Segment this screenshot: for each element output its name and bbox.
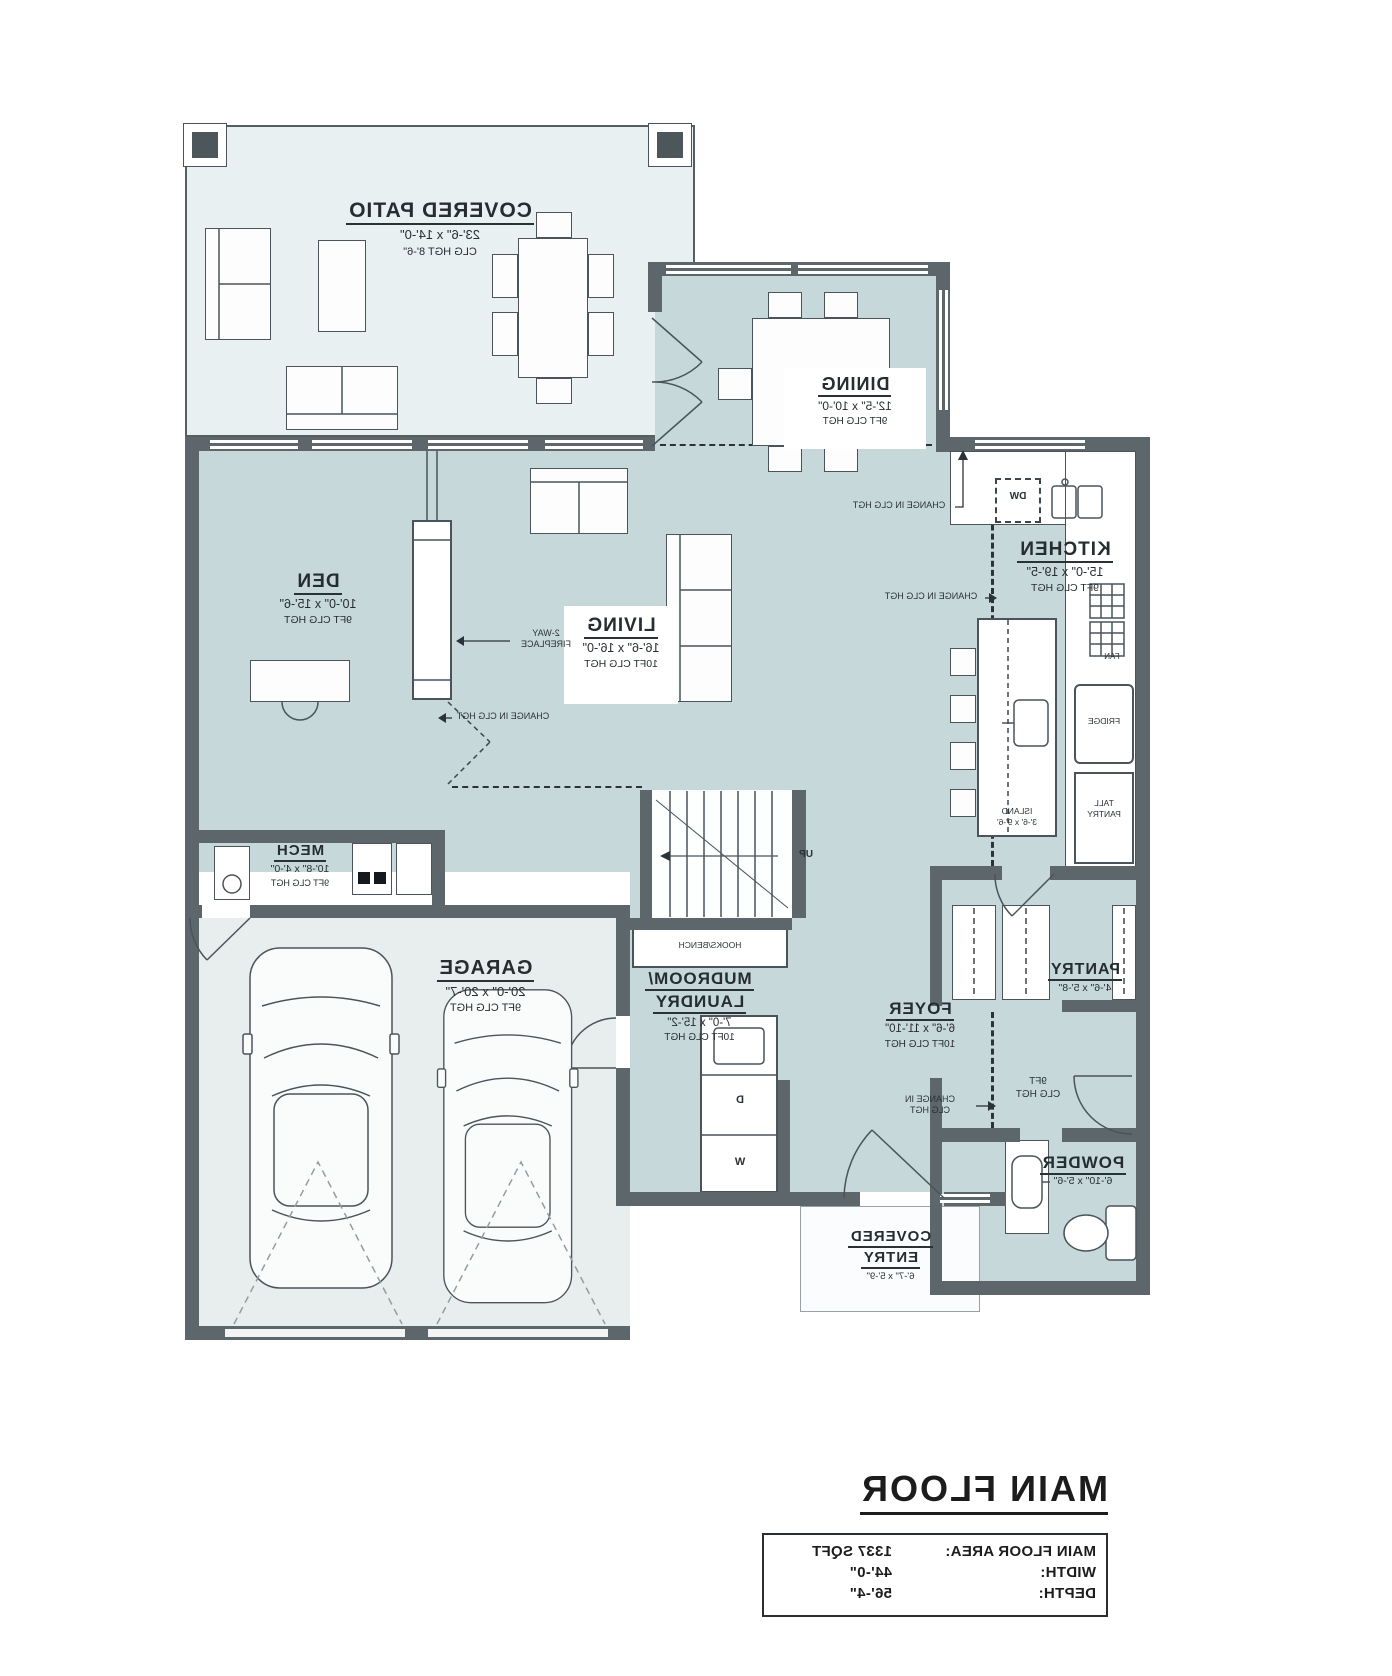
island-label: ISLAND 3'-6' x 9'-6' [980,806,1054,827]
room-dims: 4'-6" x 5'-8" [1018,982,1152,995]
island-stool [950,648,976,676]
island-stool [950,742,976,770]
room-name: KITCHEN [1017,539,1112,563]
floor-plan-canvas: COVERED PATIO 23'-6" x 14'-0" CLG HGT 8'… [0,0,1392,1676]
room-dims: 6'-7" x 5'-9" [828,1271,953,1283]
den-desk [250,660,350,702]
patio-post-core [192,132,218,158]
room-name: MUDROOM/ [645,969,753,991]
door-opening [202,905,250,918]
room-name: LIVING [584,615,657,639]
patio-chair [536,378,572,404]
room-label-mudroom-laundry: MUDROOM/ LAUNDRY 7'-0" x 15'-2" 10FT CLG… [612,968,787,1044]
fireplace-line: FIREPLACE [512,639,580,650]
wall-segment [185,437,199,918]
stat-row: DEPTH: 56'-4" [774,1585,1096,1602]
wall-segment [185,918,199,1340]
wall-segment [790,1192,860,1206]
dining-chair [768,446,802,472]
room-name: FOYER [886,999,954,1021]
garage-door-panel [225,1329,405,1337]
wall-segment [930,1281,1150,1295]
wall-segment [630,918,792,930]
wall-segment [930,866,942,1006]
room-label-mech: MECH 10'-8" x 4'-0" 9FT CLG HGT [240,842,360,889]
room-label-pantry: PANTRY 4'-6" x 5'-8" [1018,960,1152,995]
patio-chair [588,254,614,298]
mech-panel [396,843,432,895]
ceiling-change-line [452,786,642,788]
patio-loveseat [205,228,271,340]
room-name: COVERED [848,1228,933,1248]
dining-chair [768,292,802,318]
room-ceiling: 9FT CLG HGT [238,614,398,627]
room-ceiling: 9FT CLG HGT [240,878,360,889]
mech-panel-switch [374,872,386,884]
window [428,440,528,449]
change-clg-note: CHANGE IN CLG HGT [450,711,556,722]
change-clg-note: CHANGE IN CLG HGT [843,500,955,511]
room-label-kitchen: KITCHEN 15'-0" x 19'-5" 9FT CLG HGT [980,538,1150,596]
wall-segment [1062,1128,1150,1142]
room-label-garage: GARAGE 20'-0" x 20'-7" 9FT CLG HGT [398,956,573,1016]
window [545,440,643,449]
room-label-dining: DINING 12'-5" x 10'-0" 9FT CLG HGT [784,368,926,449]
change-clg-line: CLG HGT [884,1105,976,1116]
wall-segment [185,905,630,918]
room-name: ENTRY [861,1249,920,1269]
island-line: 3'-6' x 9'-6' [980,817,1054,828]
window [312,440,412,449]
patio-sofa [286,366,398,430]
wall-segment [648,262,662,312]
room-label-covered-patio: COVERED PATIO 23'-6" x 14'-0" CLG HGT 8'… [330,198,550,259]
room-dims: 20'-0" x 20'-7" [398,984,573,1000]
fireplace-line: 2-WAY [512,628,580,639]
stat-row: WIDTH: 44'-0" [774,1564,1096,1581]
change-clg-note: CHANGE IN CLG HGT [884,1094,976,1117]
stairs-area [652,790,792,918]
title-block-stats: MAIN FLOOR AREA: 1337 SQFT WIDTH: 44'-0"… [762,1533,1108,1617]
pantry-shelving [952,905,996,1000]
wall-segment [942,1128,1020,1142]
room-name: DINING [819,374,892,397]
island-stool [950,695,976,723]
dining-chair [824,292,858,318]
island-line: ISLAND [980,806,1054,817]
wall-segment [1136,872,1150,1295]
fridge-label: FRIDGE [1076,716,1132,727]
room-label-den: DEN 10'-0" x 15'-6" 9FT CLG HGT [238,570,398,628]
room-name: MECH [274,842,326,862]
wall-segment [930,866,1002,880]
room-dims: 10'-0" x 15'-6" [238,597,398,613]
dryer-label: D [728,1094,752,1108]
room-dims: 12'-5" x 10'-0" [784,399,926,414]
fan-label: FAN [1090,652,1134,662]
tall-pantry-line: PANTRY [1078,809,1130,820]
dining-chair [718,368,752,400]
wall-segment [778,1080,790,1192]
hall-ceiling-note: 9FT CLG HGT [1002,1076,1074,1101]
room-dims: 7'-0" x 15'-2" [612,1016,787,1030]
ceiling-line: 9FT [1002,1076,1074,1089]
room-label-foyer: FOYER 6'-6" x 11'-10" 10FT CLG HGT [845,998,995,1051]
room-ceiling: CLG HGT 8'-6" [330,246,550,260]
room-name: GARAGE [437,957,535,982]
stat-label: DEPTH: [1038,1585,1096,1602]
room-ceiling: 10FT CLG HGT [612,1032,787,1045]
room-dims: 6'-6" x 11'-10" [845,1022,995,1036]
window [798,265,928,274]
room-name: POWDER [1040,1153,1127,1175]
stat-row: MAIN FLOOR AREA: 1337 SQFT [774,1543,1096,1560]
room-name: PANTRY [1048,961,1122,981]
kitchen-island [977,618,1057,837]
up-label: UP [792,849,820,862]
room-ceiling: 9FT CLG HGT [980,582,1150,595]
stat-label: MAIN FLOOR AREA: [945,1543,1096,1560]
garage-door-panel [428,1329,608,1337]
patio-chair [492,254,518,298]
patio-chair [588,312,614,356]
living-sofa [530,468,628,534]
room-name: LAUNDRY [653,992,746,1014]
change-clg-note: CHANGE IN CLG HGT [878,591,984,602]
stat-value: 56'-4" [774,1585,892,1602]
room-dims: 23'-6" x 14'-0" [330,227,550,243]
sheet-title: MAIN FLOOR [762,1468,1108,1515]
sheet-title-text: MAIN FLOOR [860,1468,1108,1515]
dishwasher-label: DW [995,491,1041,504]
room-dims: 15'-0" x 19'-5" [980,565,1150,581]
room-dims: 16'-6" x 16'-0" [564,641,678,657]
island-stool [950,789,976,817]
room-ceiling: 10FT CLG HGT [845,1039,995,1052]
dining-chair [824,446,858,472]
wall-segment [1136,437,1150,872]
hooks-bench-label: HOOKS/BENCH [634,940,786,951]
stat-value: 1337 SQFT [774,1543,892,1560]
fireplace-label: 2-WAY FIREPLACE [512,628,580,651]
room-label-covered-entry: COVERED ENTRY 6'-7" x 5'-9" [828,1228,953,1282]
room-ceiling: 10FT CLG HGT [564,658,678,671]
wall-segment [1050,866,1150,880]
room-name: DEN [294,571,341,595]
window [939,290,948,410]
patio-post-core [657,132,683,158]
ceiling-line: CLG HGT [1002,1089,1074,1102]
wall-segment [616,1192,791,1206]
room-ceiling: 9FT CLG HGT [784,416,926,429]
room-name: COVERED PATIO [346,199,534,225]
window [975,440,1085,449]
two-way-fireplace [412,520,452,700]
room-ceiling: 9FT CLG HGT [398,1002,573,1016]
wall-segment [640,790,652,918]
room-label-living: LIVING 16'-6" x 16'-0" 10FT CLG HGT [564,606,678,704]
room-dims: 6'-10" x 5'-6" [1008,1175,1158,1188]
window [666,265,791,274]
washer-label: W [728,1156,752,1170]
room-dims: 10'-8" x 4'-0" [240,863,360,876]
tall-pantry-line: TALL [1078,798,1130,809]
tall-pantry-label: TALL PANTRY [1078,798,1130,819]
change-clg-line: CHANGE IN [884,1094,976,1105]
wall-segment [1062,1000,1150,1012]
window [210,440,298,449]
patio-chair [492,312,518,356]
stat-value: 44'-0" [774,1564,892,1581]
stat-label: WIDTH: [1040,1564,1096,1581]
entry-sidelite-window [940,1194,990,1203]
room-label-powder: POWDER 6'-10" x 5'-6" [1008,1152,1158,1188]
